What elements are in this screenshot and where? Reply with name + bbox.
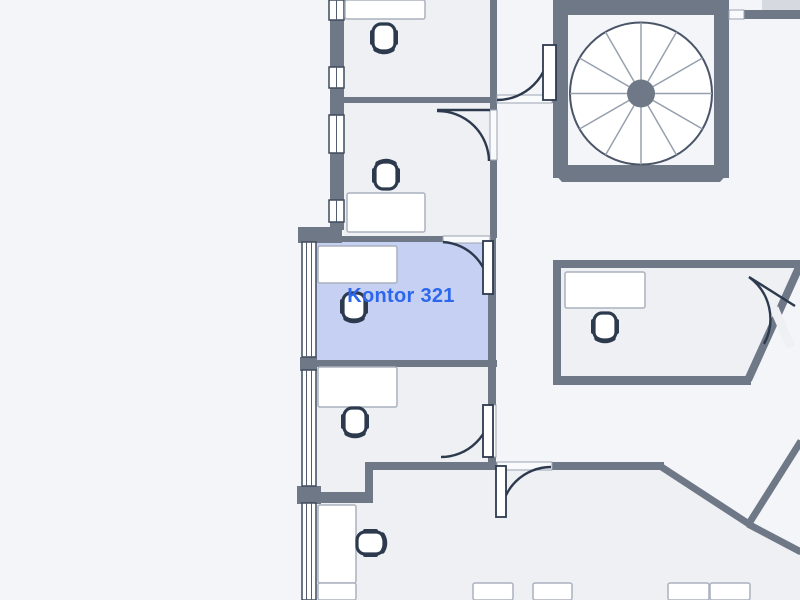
wall-segment [490,160,497,238]
office-chair-icon [591,313,619,341]
desk [318,583,356,600]
desk [318,246,397,283]
office-chair-icon [372,161,400,189]
stairwell-wall [553,165,729,182]
annex-wall-block [762,0,800,10]
office-chair-icon [370,24,398,52]
door-swing-icon [497,48,549,100]
wall-segment [552,462,664,470]
desk [318,505,356,583]
spiral-staircase-icon [570,23,712,165]
office-chair-icon [357,529,385,557]
door-opening [729,10,744,19]
wall-segment [490,0,497,110]
desk [318,367,397,407]
wall-segment [300,360,497,367]
wall-segment [297,492,373,503]
wall-segment [553,260,561,385]
desk [710,583,750,600]
wall-segment [367,462,497,470]
wall-diagonal [748,441,800,525]
door-leaf [483,405,493,457]
window-band [302,242,316,357]
desk [473,583,513,600]
desk [347,193,425,232]
floorplan-svg [0,0,800,600]
door-leaf [483,241,493,294]
wall-segment [553,376,751,385]
floorplan-canvas: Kontor 321 [0,0,800,600]
wall-segment [330,97,497,103]
wall-segment [553,260,800,268]
desk [668,583,709,600]
desk [345,0,425,19]
office-chair-icon [341,408,369,436]
window-band [302,370,316,486]
desk [565,272,645,308]
desk [533,583,572,600]
window-band [302,503,316,600]
office-chair-icon [340,293,368,321]
stairwell-wall [553,0,729,15]
room-fourth-office-notch [315,465,367,493]
stairwell-wall [714,0,729,178]
wall-segment [315,236,443,242]
wall-segment [744,10,800,19]
door-opening [490,110,497,160]
door-leaf [543,45,556,100]
door-leaf [496,466,506,517]
door-opening [774,308,791,347]
